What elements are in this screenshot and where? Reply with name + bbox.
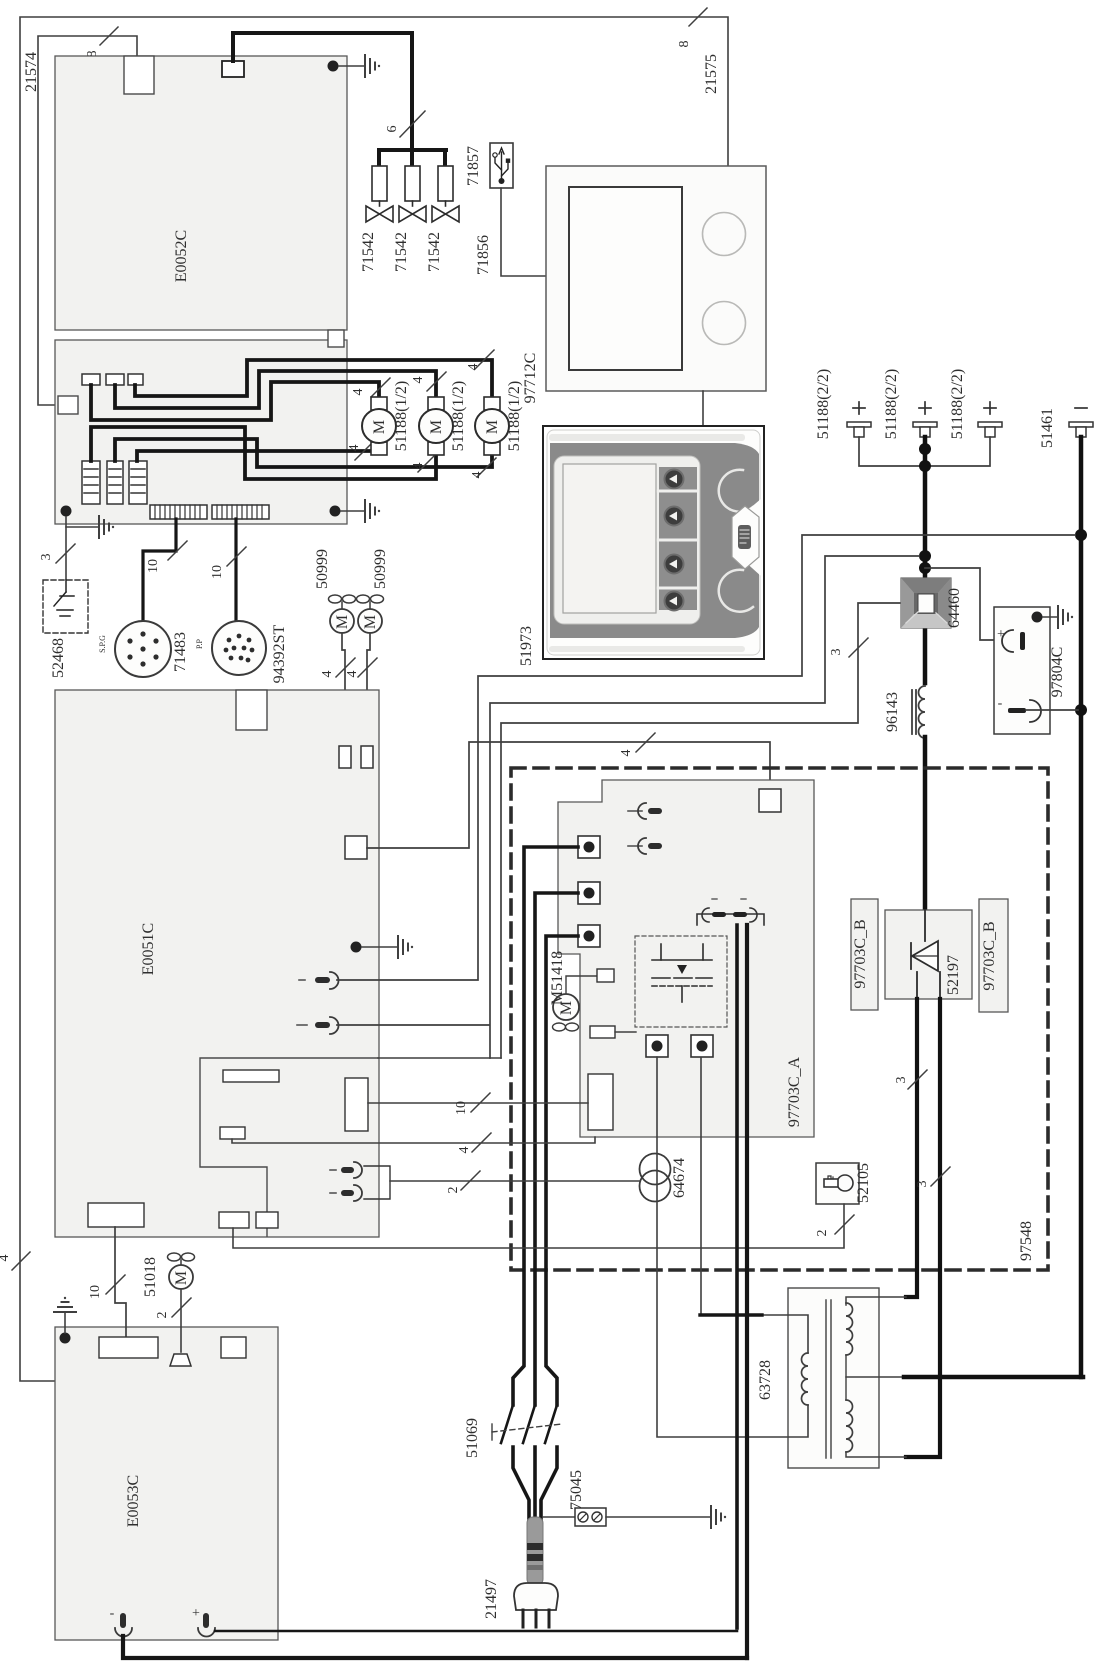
svg-text:3: 3: [829, 649, 844, 656]
svg-text:10: 10: [88, 1285, 103, 1299]
svg-text:M: M: [371, 420, 388, 434]
svg-text:94392ST: 94392ST: [271, 624, 288, 683]
svg-text:4: 4: [347, 445, 362, 452]
svg-text:2: 2: [155, 1312, 170, 1319]
svg-text:3: 3: [39, 554, 54, 561]
svg-text:50999: 50999: [314, 549, 331, 589]
svg-text:71542: 71542: [426, 232, 443, 272]
svg-text:4: 4: [411, 377, 426, 384]
svg-text:4: 4: [619, 750, 634, 757]
svg-text:4: 4: [320, 671, 335, 678]
svg-text:71856: 71856: [475, 235, 492, 275]
svg-text:97703C_B: 97703C_B: [981, 921, 998, 990]
svg-text:4: 4: [411, 463, 426, 470]
svg-text:4: 4: [0, 1255, 12, 1262]
svg-text:M: M: [173, 1271, 190, 1285]
svg-text:64460: 64460: [946, 588, 963, 628]
svg-text:75045: 75045: [568, 1470, 585, 1510]
svg-text:2: 2: [446, 1187, 461, 1194]
svg-text:71542: 71542: [393, 232, 410, 272]
svg-text:51018: 51018: [142, 1257, 159, 1297]
svg-text:97804C: 97804C: [1049, 647, 1066, 698]
svg-text:M: M: [334, 615, 351, 629]
svg-text:51188(2/2): 51188(2/2): [815, 369, 832, 440]
svg-text:97703C_B: 97703C_B: [852, 919, 869, 988]
svg-text:51188(2/2): 51188(2/2): [949, 369, 966, 440]
svg-text:71857: 71857: [465, 146, 482, 186]
svg-text:10: 10: [146, 559, 161, 573]
svg-text:M51418: M51418: [549, 951, 566, 1005]
svg-text:21574: 21574: [23, 52, 40, 92]
svg-text:97712C: 97712C: [522, 353, 539, 404]
svg-text:96143: 96143: [884, 692, 901, 732]
svg-text:21575: 21575: [703, 54, 720, 94]
svg-text:21497: 21497: [483, 1579, 500, 1619]
svg-text:4: 4: [457, 1147, 472, 1154]
svg-text:S.P.G: S.P.G: [98, 635, 107, 653]
svg-text:3: 3: [894, 1077, 909, 1084]
svg-text:M: M: [484, 420, 501, 434]
svg-text:3: 3: [915, 1181, 930, 1188]
svg-text:52197: 52197: [945, 955, 962, 995]
svg-text:E0051C: E0051C: [140, 923, 157, 975]
svg-text:8: 8: [677, 41, 692, 48]
svg-text:63728: 63728: [757, 1360, 774, 1400]
svg-text:4: 4: [466, 364, 481, 371]
svg-text:4: 4: [470, 472, 485, 479]
svg-text:50999: 50999: [372, 549, 389, 589]
svg-text:+: +: [192, 1606, 200, 1621]
svg-text:10: 10: [454, 1101, 469, 1115]
svg-text:52105: 52105: [855, 1163, 872, 1203]
svg-text:51188(1/2): 51188(1/2): [450, 381, 467, 452]
svg-text:E0053C: E0053C: [125, 1475, 142, 1527]
svg-text:51188(2/2): 51188(2/2): [883, 369, 900, 440]
svg-text:51973: 51973: [518, 626, 535, 666]
svg-text:52468: 52468: [50, 638, 67, 678]
svg-text:4: 4: [351, 389, 366, 396]
svg-text:97548: 97548: [1018, 1221, 1035, 1261]
svg-text:M: M: [362, 615, 379, 629]
svg-text:71542: 71542: [360, 232, 377, 272]
svg-text:2: 2: [815, 1230, 830, 1237]
svg-text:-: -: [998, 696, 1003, 711]
svg-text:E0052C: E0052C: [173, 230, 190, 282]
svg-text:51461: 51461: [1039, 408, 1056, 448]
svg-text:-: -: [110, 1606, 115, 1621]
svg-text:51188(1/2): 51188(1/2): [506, 381, 523, 452]
svg-text:10: 10: [210, 565, 225, 579]
svg-text:M: M: [428, 420, 445, 434]
svg-text:4: 4: [345, 671, 360, 678]
svg-text:P.P: P.P: [195, 638, 204, 649]
svg-text:6: 6: [385, 126, 400, 133]
svg-text:71483: 71483: [172, 632, 189, 672]
svg-text:51069: 51069: [464, 1418, 481, 1458]
svg-text:51188(1/2): 51188(1/2): [393, 381, 410, 452]
svg-text:64674: 64674: [671, 1158, 688, 1198]
svg-text:97703C_A: 97703C_A: [786, 1056, 803, 1127]
